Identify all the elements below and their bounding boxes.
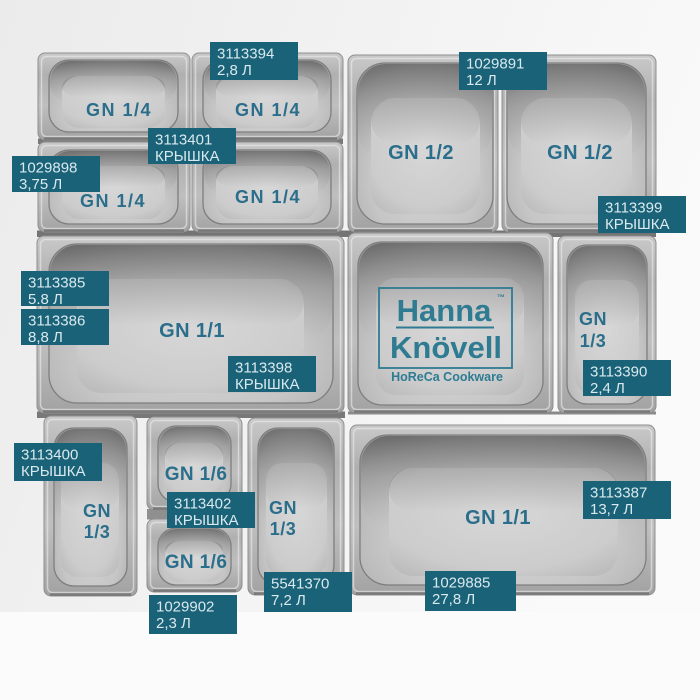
svg-text:КРЫШКА: КРЫШКА	[235, 376, 300, 393]
svg-text:3113390: 3113390	[590, 364, 647, 381]
svg-text:7,2 Л: 7,2 Л	[271, 592, 306, 609]
svg-text:3113399: 3113399	[605, 200, 662, 217]
svg-text:КРЫШКА: КРЫШКА	[174, 512, 239, 529]
svg-text:5541370: 5541370	[271, 576, 329, 593]
svg-text:3,75 Л: 3,75 Л	[19, 176, 62, 193]
svg-text:GN: GN	[269, 498, 297, 518]
svg-text:1029902: 1029902	[156, 599, 214, 616]
svg-text:GN: GN	[579, 309, 607, 329]
svg-text:5.8 Л: 5.8 Л	[28, 291, 63, 308]
svg-text:GN 1/6: GN 1/6	[165, 552, 228, 573]
svg-text:27,8 Л: 27,8 Л	[432, 591, 475, 608]
svg-text:1/3: 1/3	[270, 519, 297, 539]
svg-text:3113387: 3113387	[590, 485, 647, 502]
svg-text:3113386: 3113386	[28, 313, 85, 330]
svg-text:Hanna: Hanna	[397, 293, 493, 328]
svg-text:GN 1/1: GN 1/1	[465, 507, 531, 529]
svg-text:GN: GN	[83, 501, 111, 521]
svg-text:2,3 Л: 2,3 Л	[156, 615, 191, 632]
svg-text:GN 1/1: GN 1/1	[159, 320, 225, 342]
svg-text:2,4 Л: 2,4 Л	[590, 380, 625, 397]
svg-text:™: ™	[497, 293, 505, 302]
svg-text:12 Л: 12 Л	[466, 72, 497, 89]
svg-text:2,8 Л: 2,8 Л	[217, 62, 252, 79]
svg-text:3113400: 3113400	[21, 447, 78, 464]
svg-text:3113402: 3113402	[174, 496, 231, 513]
svg-text:1029891: 1029891	[466, 56, 524, 73]
svg-text:HoReCa Cookware: HoReCa Cookware	[391, 370, 503, 384]
svg-text:3113394: 3113394	[217, 46, 274, 63]
svg-text:3113385: 3113385	[28, 275, 85, 292]
svg-text:1/3: 1/3	[580, 331, 607, 351]
svg-text:3113398: 3113398	[235, 360, 292, 377]
svg-text:1029898: 1029898	[19, 160, 77, 177]
svg-text:КРЫШКА: КРЫШКА	[21, 463, 86, 480]
svg-text:КРЫШКА: КРЫШКА	[155, 148, 220, 165]
svg-text:GN 1/2: GN 1/2	[388, 142, 454, 164]
svg-text:GN 1/2: GN 1/2	[547, 142, 613, 164]
svg-text:1/3: 1/3	[84, 522, 111, 542]
svg-text:1029885: 1029885	[432, 575, 490, 592]
svg-text:GN 1/4: GN 1/4	[80, 191, 146, 211]
svg-text:8,8 Л: 8,8 Л	[28, 329, 63, 346]
svg-text:GN 1/6: GN 1/6	[165, 464, 228, 485]
svg-text:GN 1/4: GN 1/4	[235, 187, 301, 207]
svg-text:GN 1/4: GN 1/4	[86, 100, 152, 120]
svg-text:Knövell: Knövell	[390, 330, 502, 365]
svg-text:КРЫШКА: КРЫШКА	[605, 216, 670, 233]
svg-text:13,7 Л: 13,7 Л	[590, 501, 633, 518]
svg-text:GN 1/4: GN 1/4	[235, 100, 301, 120]
svg-text:3113401: 3113401	[155, 132, 212, 149]
